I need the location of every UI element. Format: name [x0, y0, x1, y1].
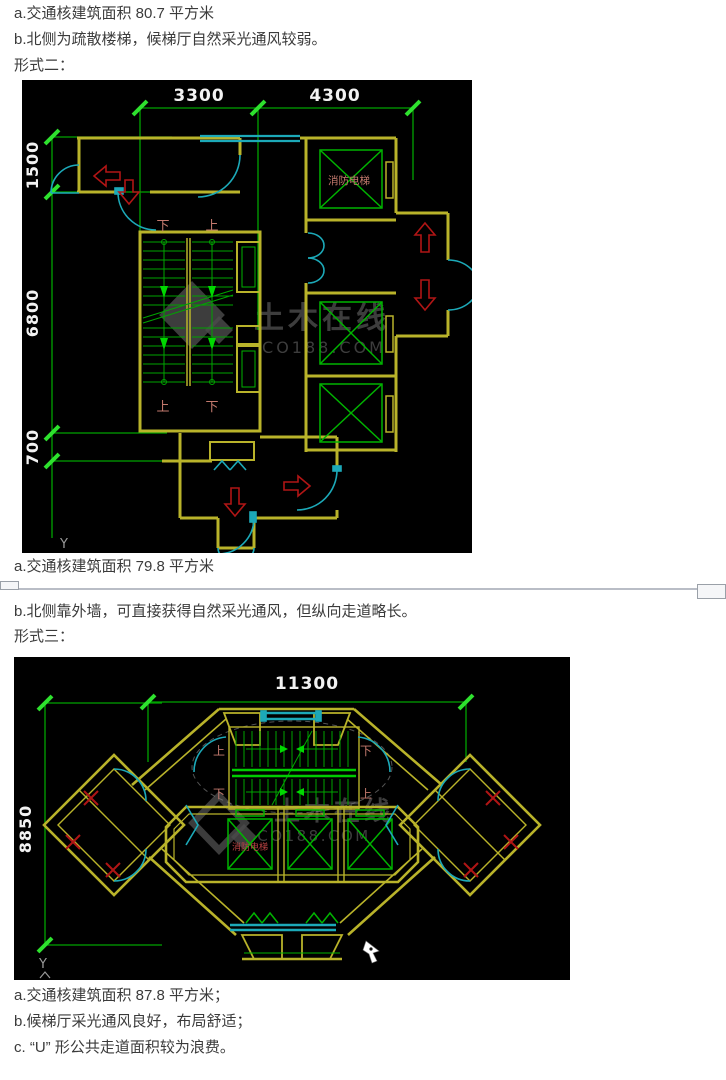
note-form3-waste: c. “U” 形公共走道面积较为浪费。 — [14, 1038, 235, 1057]
note-form3-area: a.交通核建筑面积 87.8 平方米； — [14, 986, 229, 1005]
form2-heading: 形式二： — [14, 56, 74, 75]
page-split-divider — [0, 588, 726, 590]
stair-label-down: 下 — [156, 219, 169, 234]
cad-drawing-form3: 土木在线 CO188.COM 11300 8850 — [14, 657, 570, 980]
dim-700: 700 — [23, 429, 42, 465]
note-form2-area: a.交通核建筑面积 80.7 平方米 — [14, 4, 214, 23]
form3-heading: 形式三： — [14, 627, 74, 646]
dim-11300: 11300 — [275, 674, 339, 694]
stair-label-up2: 上 — [156, 400, 169, 415]
note-form2-result: a.交通核建筑面积 79.8 平方米 — [14, 557, 214, 576]
cad-drawing-form2: 土木在线 CO188.COM 3300 4300 1500 6800 700 — [22, 80, 472, 553]
stair-label-down: 下 — [360, 744, 372, 758]
svg-text:CO188.COM: CO188.COM — [262, 338, 386, 357]
stair-label-up2: 上 — [360, 787, 372, 801]
dim-8850: 8850 — [16, 805, 35, 854]
fire-elevator-label: 消防电梯 — [328, 174, 370, 187]
fire-elevator-label: 消防电梯 — [232, 841, 268, 853]
svg-text:Y: Y — [38, 957, 47, 972]
dim-4300: 4300 — [309, 86, 360, 106]
dim-3300: 3300 — [173, 86, 224, 106]
dim-6800: 6800 — [23, 289, 42, 338]
svg-text:CO188.COM: CO188.COM — [257, 827, 370, 845]
stair-label-down2: 下 — [213, 787, 225, 801]
note-form3-comfort: b.候梯厅采光通风良好，布局舒适； — [14, 1012, 252, 1031]
note-form3-intro: b.北侧靠外墙，可直接获得自然采光通风，但纵向走道略长。 — [14, 602, 417, 621]
divider-right-handle[interactable] — [697, 584, 726, 599]
axis-y-marker: Y — [59, 537, 68, 552]
svg-text:土木在线: 土木在线 — [254, 301, 390, 336]
stair-label-up: 上 — [213, 744, 225, 758]
dim-1500: 1500 — [23, 141, 42, 190]
document-page: a.交通核建筑面积 80.7 平方米 b.北侧为疏散楼梯，候梯厅自然采光通风较弱… — [0, 0, 726, 1080]
stair-label-up: 上 — [205, 219, 218, 234]
divider-left-handle[interactable] — [0, 581, 19, 590]
stair-label-down2: 下 — [205, 400, 218, 415]
note-form2-north: b.北侧为疏散楼梯，候梯厅自然采光通风较弱。 — [14, 30, 327, 49]
